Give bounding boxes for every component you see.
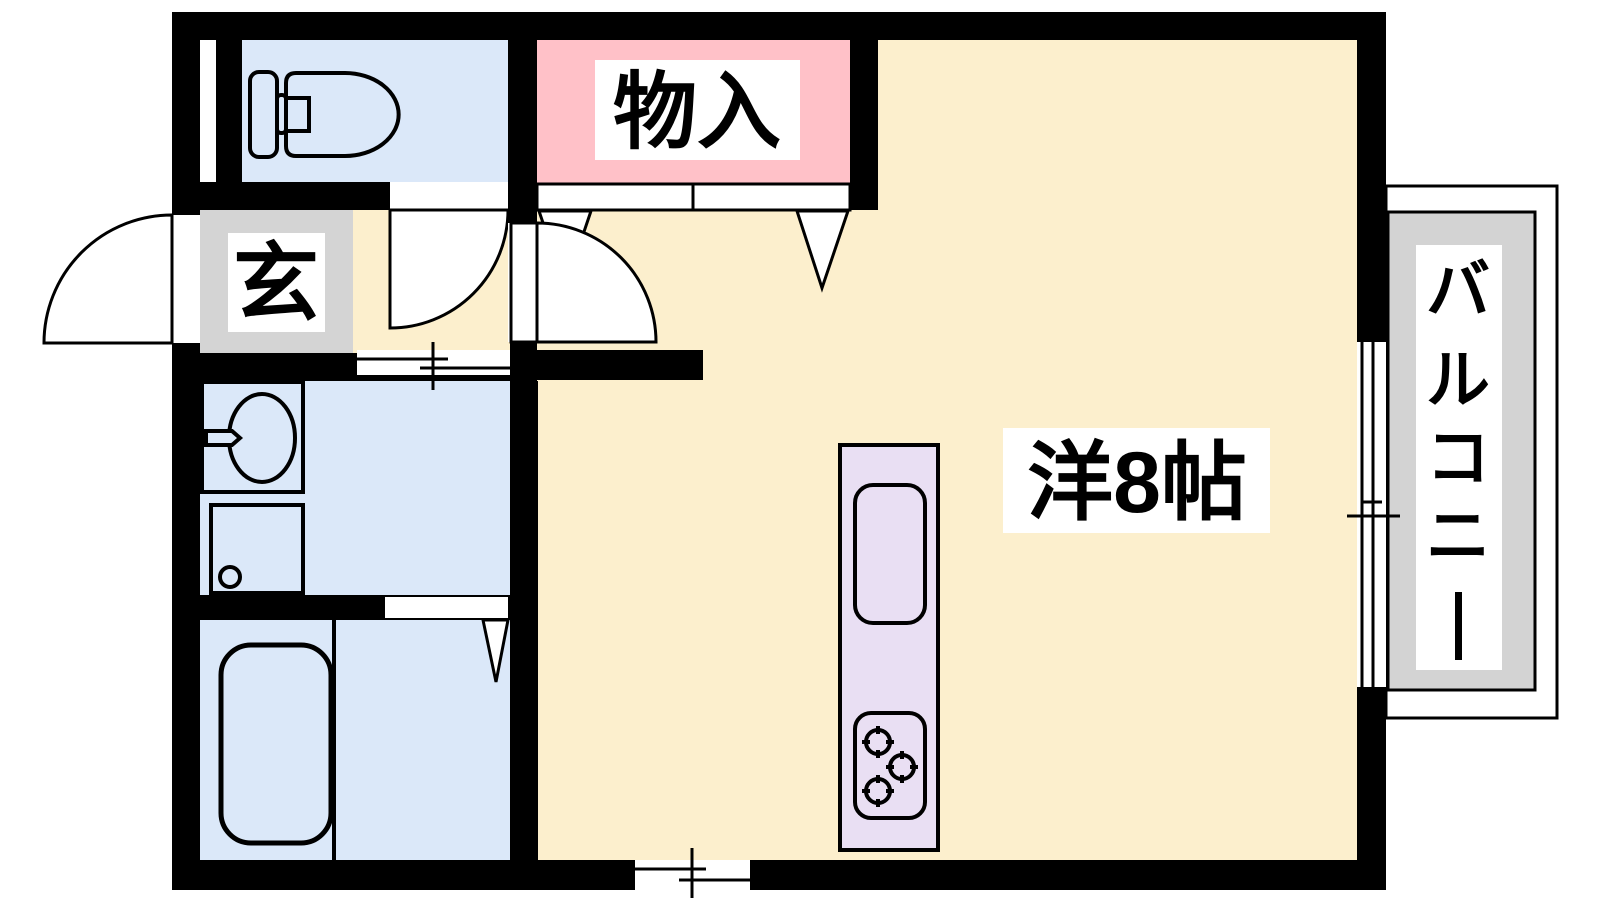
wall-toilet-bottom [172, 182, 390, 210]
floor-plan-canvas: 物入 玄 洋8帖 バ ル コ ニ [0, 0, 1600, 900]
balcony-label-char-1: バ [1426, 254, 1490, 326]
toilet-window-slit [200, 40, 216, 182]
wall-pillar-storage-right [850, 12, 878, 210]
bathroom-floor [200, 620, 510, 860]
balcony-label-char-2: ル [1426, 344, 1490, 416]
wall-room-divider [537, 350, 703, 380]
washroom-floor [200, 381, 510, 595]
wall-right-lower [1357, 687, 1386, 890]
wall-right-upper [1357, 12, 1386, 342]
basin-tap [206, 431, 240, 445]
entrance-opening [172, 215, 200, 343]
balcony-label-char-dash-icon [1455, 592, 1462, 660]
wall-top [172, 12, 1386, 40]
floor-plan: 物入 玄 洋8帖 バ ル コ ニ [0, 0, 1600, 900]
balcony-label-char-4: ニ [1426, 500, 1490, 572]
main-room-label: 洋8帖 [1027, 435, 1247, 531]
balcony-label: バ ル コ ニ [1416, 245, 1502, 670]
wall-bottom [172, 860, 1386, 890]
wall-washroom-right [510, 381, 538, 860]
wall-toilet-inner [216, 40, 242, 182]
toilet-door-opening [390, 182, 508, 210]
toilet-seat-notch [286, 98, 309, 131]
entrance-door-swing-arc-icon [44, 215, 172, 343]
bathroom-door-opening [385, 597, 508, 618]
wall-left [172, 12, 200, 890]
wall-hall-corner [510, 342, 537, 381]
storage-label: 物入 [613, 65, 781, 159]
entrance-label: 玄 [233, 236, 319, 332]
balcony-label-char-3: コ [1426, 422, 1490, 494]
kitchen-counter [840, 445, 938, 850]
wall-pillar-storage-left [508, 12, 537, 223]
wall-entrance-bottom [172, 353, 357, 381]
main-door-leaf [511, 223, 537, 342]
